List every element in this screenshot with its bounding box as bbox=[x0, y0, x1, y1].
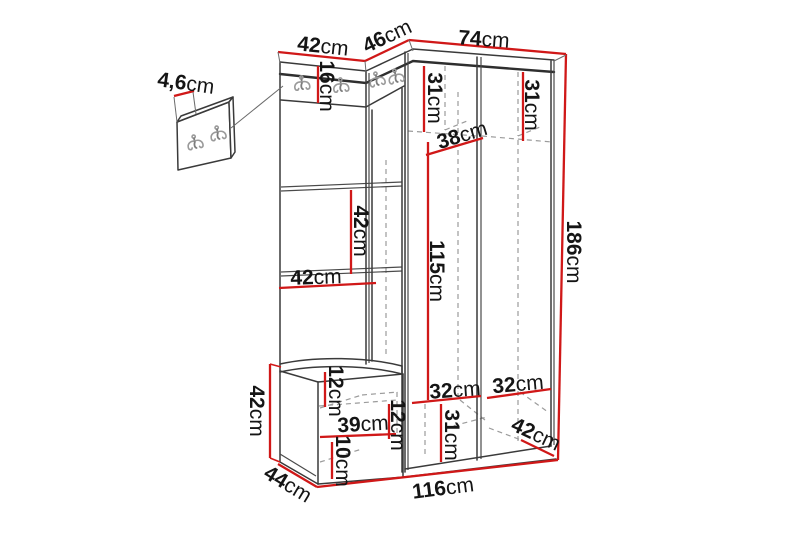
dim-label-hook-rail-height: 16cm bbox=[316, 60, 339, 111]
dimension-labels: 4,6cm 42cm 46cm 74cm 16cm 31cm 31cm 38cm… bbox=[156, 15, 585, 507]
diagram-canvas: 4,6cm 42cm 46cm 74cm 16cm 31cm 31cm 38cm… bbox=[0, 0, 800, 533]
callout-line bbox=[231, 86, 283, 128]
dim-label-total-width: 116cm bbox=[411, 473, 475, 503]
dim-label-seat-thickness: 12cm bbox=[325, 365, 348, 416]
dim-label-lower-shelf-right: 32cm bbox=[491, 370, 544, 397]
dim-label-hook-panel-thickness: 4,6cm bbox=[156, 68, 216, 99]
dim-label-lower-shelf-left: 32cm bbox=[429, 377, 482, 404]
dim-label-bench-inner-height: 12cm bbox=[387, 399, 410, 450]
dim-label-top-width-right: 74cm bbox=[458, 26, 511, 53]
dim-label-top-width-left: 42cm bbox=[296, 32, 349, 60]
dim-label-lower-compartment-height: 31cm bbox=[441, 409, 464, 460]
dim-label-upper-left-height: 31cm bbox=[424, 72, 447, 123]
dim-label-total-height: 186cm bbox=[563, 220, 586, 283]
furniture-dimension-diagram: 4,6cm 42cm 46cm 74cm 16cm 31cm 31cm 38cm… bbox=[0, 0, 800, 533]
dim-label-bench-height: 42cm bbox=[246, 385, 269, 436]
hook-icon bbox=[387, 67, 405, 84]
dim-label-hanging-height: 115cm bbox=[426, 240, 449, 302]
dim-label-upper-right-height: 31cm bbox=[521, 79, 544, 130]
dim-label-bench-base-height: 10cm bbox=[332, 435, 355, 486]
dim-label-panel-square-height: 42cm bbox=[350, 205, 373, 256]
hook-panel bbox=[177, 86, 283, 170]
hook-icon bbox=[368, 70, 386, 87]
dim-label-bench-inner-width: 39cm bbox=[337, 411, 389, 437]
dim-label-panel-width: 42cm bbox=[290, 265, 342, 290]
dim-label-bench-depth: 44cm bbox=[260, 461, 316, 507]
